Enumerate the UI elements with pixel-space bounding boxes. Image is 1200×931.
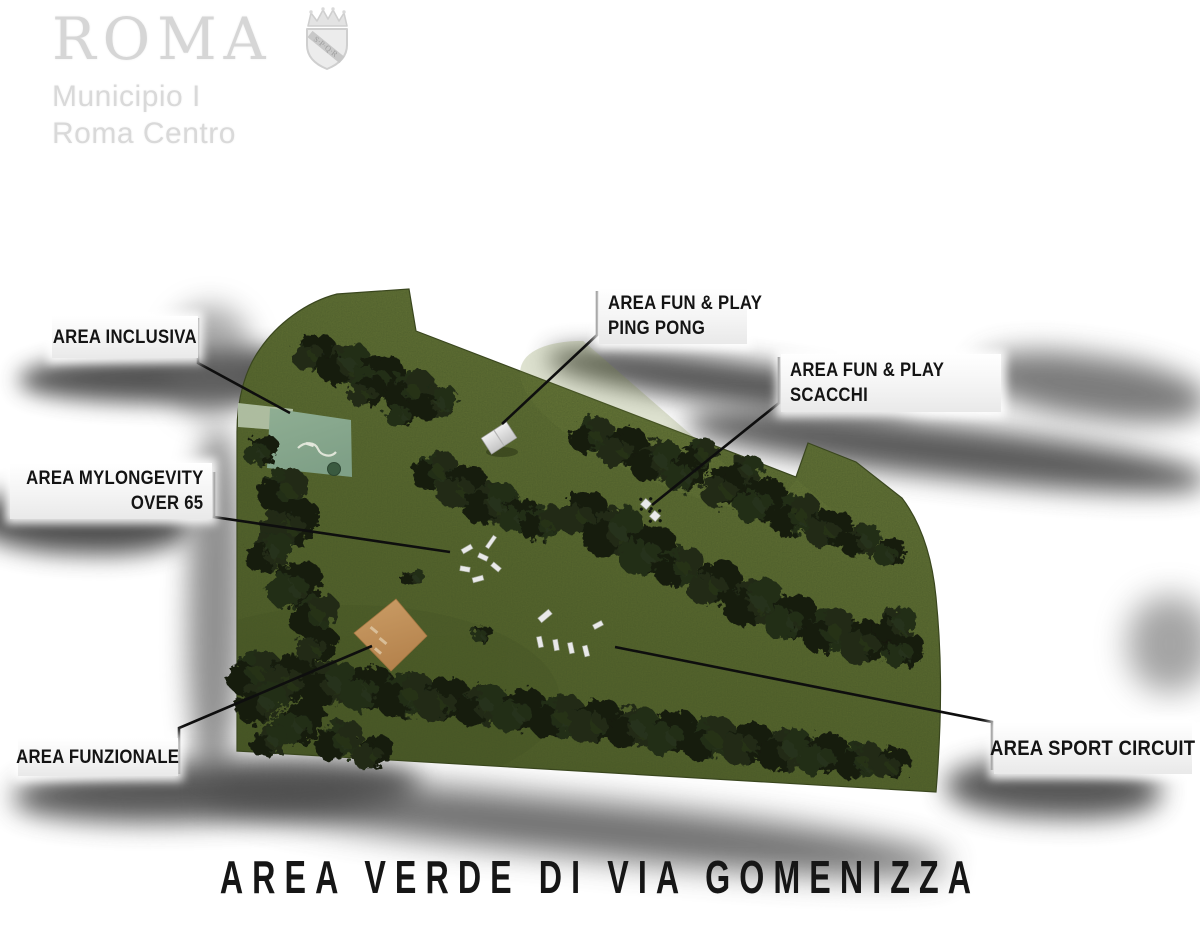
municipality-name: Municipio I Roma Centro	[52, 78, 273, 152]
spqr-crest-icon: S·P·Q·R	[297, 6, 355, 76]
area-label-text: PING PONG	[608, 316, 705, 341]
area-label-text: AREA MYLONGEVITY	[26, 466, 203, 491]
city-logo-title: ROMA	[52, 8, 273, 70]
area-label-funzionale: AREA FUNZIONALE	[18, 738, 178, 776]
area-label-mylongevity: AREA MYLONGEVITYOVER 65	[10, 463, 212, 519]
area-label-text: OVER 65	[131, 491, 203, 516]
area-label-ping-pong: AREA FUN & PLAYPING PONG	[599, 288, 747, 344]
area-label-text: AREA FUN & PLAY	[608, 291, 762, 316]
area-label-sport-circuit: AREA SPORT CIRCUIT	[994, 722, 1192, 774]
poster-title: AREA VERDE DI VIA GOMENIZZA	[180, 850, 1020, 904]
poster: AREA INCLUSIVAAREA MYLONGEVITYOVER 65ARE…	[0, 0, 1200, 931]
city-logo: ROMA Municipio I Roma Centro	[52, 8, 273, 152]
municipality-line2: Roma Centro	[52, 115, 273, 152]
area-label-inclusiva: AREA INCLUSIVA	[52, 316, 198, 358]
area-label-scacchi: AREA FUN & PLAYSCACCHI	[781, 354, 1001, 412]
area-label-text: AREA INCLUSIVA	[53, 325, 197, 350]
area-label-text: AREA FUN & PLAY	[790, 358, 944, 383]
area-label-text: AREA SPORT CIRCUIT	[990, 736, 1195, 761]
area-label-text: AREA FUNZIONALE	[16, 745, 179, 770]
municipality-line1: Municipio I	[52, 78, 273, 115]
area-label-text: SCACCHI	[790, 383, 868, 408]
